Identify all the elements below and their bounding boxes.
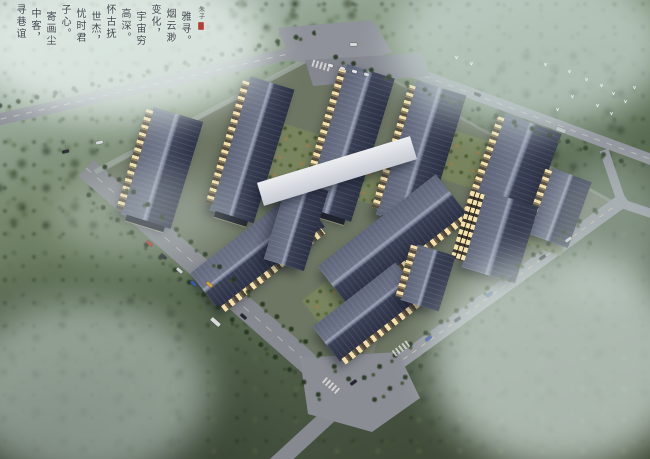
bird-icon: v: [624, 100, 627, 104]
calligraphy-column: 世杰，: [91, 11, 102, 76]
bird-icon: v: [455, 56, 458, 60]
calligraphy-column: 子心。: [61, 4, 72, 76]
calligraphy-column: 雅寻。: [181, 11, 192, 76]
red-seal-stamp: [198, 22, 204, 30]
mist-patch: [50, 170, 230, 260]
bird-icon: v: [600, 84, 603, 88]
calligraphy-column: 寻巷谊: [16, 4, 27, 76]
bird-icon: v: [633, 86, 636, 90]
calligraphy-column: 怀古抚: [106, 4, 117, 76]
calligraphy-column: 变化，: [151, 4, 162, 76]
calligraphy-column: 宇宙穷: [136, 11, 147, 76]
bird-icon: v: [544, 63, 547, 67]
calligraphy-column: 中客，: [31, 8, 42, 76]
bird-icon: v: [612, 92, 615, 96]
bird-icon: v: [470, 62, 473, 66]
calligraphy-column: 烟云渺: [166, 8, 177, 76]
calligraphy-column: 忧时君: [76, 8, 87, 76]
calligraphy-column: 高深。: [121, 8, 132, 76]
bird-icon: v: [610, 112, 613, 116]
bird-icon: v: [556, 108, 559, 112]
bird-icon: v: [585, 78, 588, 82]
bird-icon: v: [596, 104, 599, 108]
signature-and-seal: 朱子: [196, 6, 206, 76]
bird-icon: v: [571, 95, 574, 99]
bird-icon: v: [568, 70, 571, 74]
aerial-rendering-scene: v v v v v v v v v v v v v 朱子 雅寻。 烟云渺 变化，…: [0, 0, 650, 459]
calligraphy-inscription: 朱子 雅寻。 烟云渺 变化， 宇宙穷 高深。 怀古抚 世杰， 忧时君 子心。 寄…: [16, 4, 206, 76]
calligraphy-column: 寄画尘: [46, 11, 57, 76]
calligraphy-signature: 朱子: [197, 6, 206, 20]
car: [350, 43, 357, 46]
